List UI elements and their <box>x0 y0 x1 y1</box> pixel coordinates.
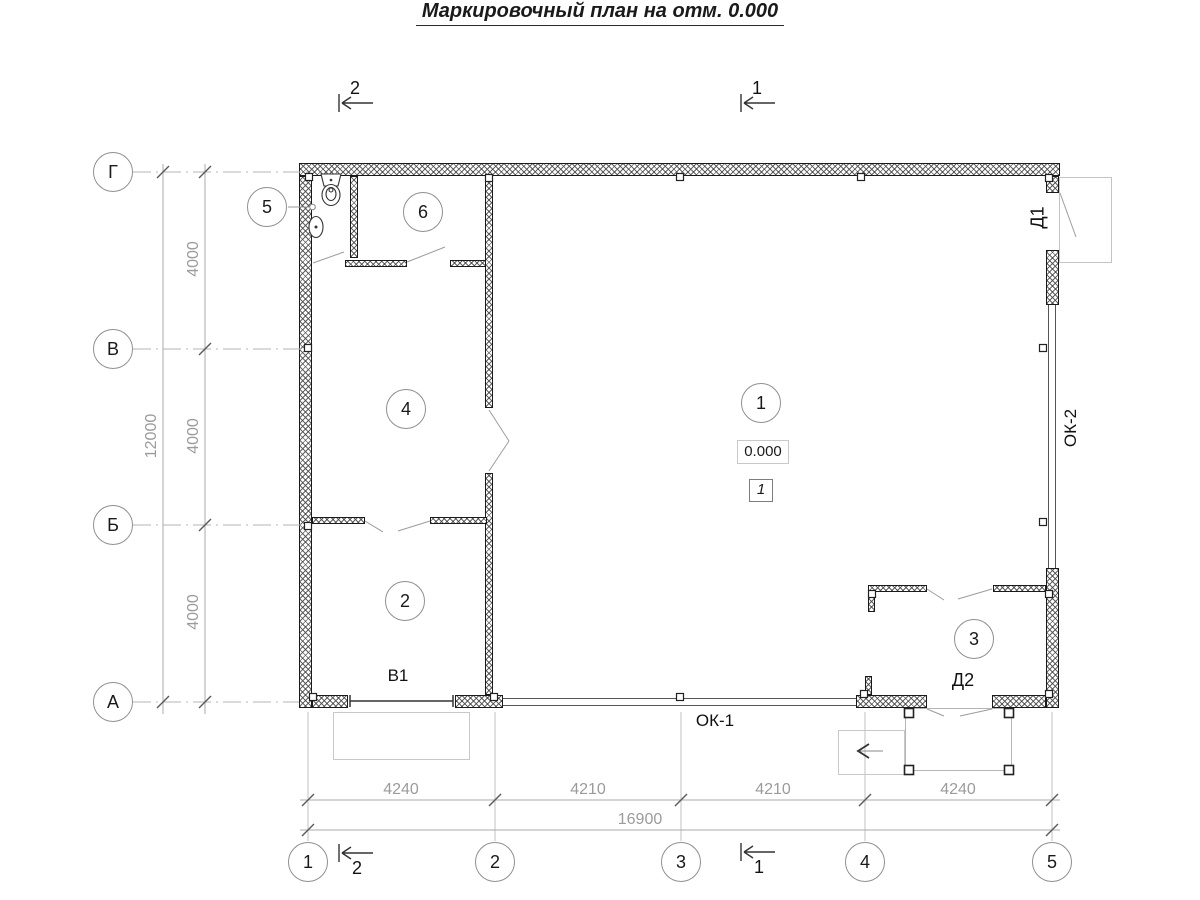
elevation-mark: 0.000 <box>737 440 789 464</box>
zone-value: 1 <box>757 481 765 498</box>
grid-axis-v: В <box>93 329 133 369</box>
section-mark-2-top: 2 <box>350 78 360 99</box>
wall-exterior-right-low <box>1046 568 1059 708</box>
dim-horizontal-total: 16900 <box>605 811 675 829</box>
plan-linework <box>0 0 1200 900</box>
room-6-number: 6 <box>418 202 428 222</box>
door-label-d2: Д2 <box>945 670 981 691</box>
page-title: Маркировочный план на отм. 0.000 <box>0 0 1200 23</box>
wall-exterior-bottom-a <box>312 695 348 708</box>
dim-vertical-total: 12000 <box>143 401 161 471</box>
gate-label-v1: В1 <box>383 666 413 686</box>
grid-axis-3: 3 <box>661 842 701 882</box>
wall-wc-divider <box>350 176 358 258</box>
grid-axis-b-label: Б <box>107 515 119 535</box>
porch-outline <box>905 708 1012 771</box>
room-mark-4: 4 <box>386 389 426 429</box>
grid-axis-5: 5 <box>1032 842 1072 882</box>
section-mark-2-bottom: 2 <box>352 858 362 879</box>
grid-axis-1-label: 1 <box>303 852 313 872</box>
wall-exterior-bottom-d <box>992 695 1046 708</box>
wall-exterior-left <box>299 176 312 708</box>
grid-axis-2-label: 2 <box>490 852 500 872</box>
wall-exterior-top <box>299 163 1060 176</box>
grid-axis-v-label: В <box>107 339 119 359</box>
section-mark-1-bottom: 1 <box>754 857 764 878</box>
window-label-ok2: ОК-2 <box>1061 403 1081 453</box>
grid-axis-3-label: 3 <box>676 852 686 872</box>
wall-axis-b-left <box>312 517 365 524</box>
room-4-number: 4 <box>401 399 411 419</box>
dim-horizontal-seg-2: 4210 <box>558 781 618 799</box>
room-1-number: 1 <box>756 393 766 413</box>
wall-room4-room1-bottom <box>485 473 493 695</box>
section-mark-1-top: 1 <box>752 78 762 99</box>
floor-plan-canvas: { "title": "Маркировочный план на отм. 0… <box>0 0 1200 900</box>
dim-horizontal-seg-4: 4240 <box>928 781 988 799</box>
wall-exterior-right-top <box>1046 176 1059 193</box>
entry-landing-d1 <box>1059 177 1112 263</box>
dim-horizontal-seg-3: 4210 <box>743 781 803 799</box>
room-mark-6: 6 <box>403 192 443 232</box>
dim-horizontal-seg-1: 4240 <box>371 781 431 799</box>
wall-vestibule-stub <box>865 676 872 695</box>
room-mark-1: 1 <box>741 383 781 423</box>
room-mark-2: 2 <box>385 581 425 621</box>
room-3-number: 3 <box>969 629 979 649</box>
toilet-icon <box>321 174 341 206</box>
room-5-number: 5 <box>262 197 272 217</box>
grid-axis-1: 1 <box>288 842 328 882</box>
window-label-ok1: ОК-1 <box>690 711 740 731</box>
grid-axis-a-label: А <box>107 692 119 712</box>
room-mark-3: 3 <box>954 619 994 659</box>
marker-squares <box>305 174 1053 701</box>
zone-mark: 1 <box>749 479 773 502</box>
ramp-outline <box>838 730 905 775</box>
wall-exterior-bottom-b <box>455 695 503 708</box>
wall-room4-room1-top <box>485 176 493 408</box>
wall-exterior-bottom-c <box>856 695 927 708</box>
grid-axis-b: Б <box>93 505 133 545</box>
grid-axis-4: 4 <box>845 842 885 882</box>
wall-vestibule-return <box>868 592 875 612</box>
grid-axis-g-label: Г <box>108 162 118 182</box>
wall-axis-b-right <box>430 517 487 524</box>
grid-axis-g: Г <box>93 152 133 192</box>
gate-v1-lines <box>350 695 453 707</box>
dim-vertical-seg-1: 4000 <box>185 229 203 289</box>
gate-porch-outline <box>333 712 470 760</box>
wall-room6-bottom-b <box>450 260 487 267</box>
wall-vestibule-top-right <box>993 585 1046 592</box>
grid-axis-2: 2 <box>475 842 515 882</box>
grid-axis-4-label: 4 <box>860 852 870 872</box>
dim-vertical-seg-3: 4000 <box>185 582 203 642</box>
room-mark-5: 5 <box>247 187 287 227</box>
dim-vertical-seg-2: 4000 <box>185 406 203 466</box>
door-label-d1: Д1 <box>1028 198 1049 238</box>
grid-axis-5-label: 5 <box>1047 852 1057 872</box>
wall-room6-bottom-a <box>345 260 407 267</box>
grid-axis-a: А <box>93 682 133 722</box>
wall-vestibule-top-left <box>868 585 927 592</box>
room-2-number: 2 <box>400 591 410 611</box>
elevation-value: 0.000 <box>744 443 782 460</box>
wall-exterior-right-mid <box>1046 250 1059 305</box>
